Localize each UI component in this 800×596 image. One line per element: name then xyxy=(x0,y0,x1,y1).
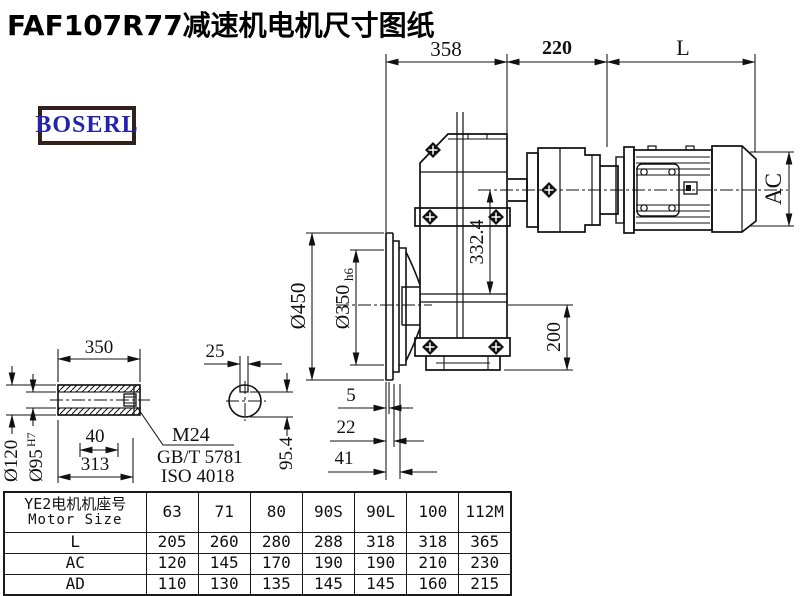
cell: 190 xyxy=(302,553,354,574)
table-row-AD: AD 110 130 135 145 145 160 215 xyxy=(4,574,511,595)
dim-AC-label: AC xyxy=(761,173,786,205)
cell: 205 xyxy=(146,532,198,553)
shaft-313-label: 313 xyxy=(81,454,110,475)
cell: 210 xyxy=(407,553,459,574)
cell: 135 xyxy=(250,574,302,595)
col-header: 63 xyxy=(146,492,198,532)
dim-41-label: 41 xyxy=(335,448,354,469)
cell: 280 xyxy=(250,532,302,553)
output-flange xyxy=(386,233,420,380)
adapter-bolt xyxy=(541,182,557,198)
cell: 190 xyxy=(355,553,407,574)
dim-22-label: 22 xyxy=(337,417,356,438)
table-row-AC: AC 120 145 170 190 190 210 230 xyxy=(4,553,511,574)
technical-drawing: 358 220 L AC 332.4 Ø450 Ø350 h6 200 5 22… xyxy=(0,0,800,490)
centerlines xyxy=(50,190,788,421)
cell: 130 xyxy=(198,574,250,595)
dim-L-label: L xyxy=(676,35,689,60)
cell: 318 xyxy=(407,532,459,553)
standard-gb-label: GB/T 5781 xyxy=(157,447,243,468)
cell: 145 xyxy=(198,553,250,574)
dim-450-label: Ø450 xyxy=(286,283,310,330)
cell: 110 xyxy=(146,574,198,595)
col-header: 80 xyxy=(250,492,302,532)
cell: 365 xyxy=(459,532,511,553)
cell: 318 xyxy=(355,532,407,553)
motor-dimension-table: YE2电机机座号 Motor Size 63 71 80 90S 90L 100… xyxy=(3,491,512,596)
thread-spec-label: M24 xyxy=(172,424,210,446)
col-header: 90S xyxy=(302,492,354,532)
brand-logo-text: BOSERL xyxy=(35,112,138,139)
row-label: L xyxy=(4,532,146,553)
shaft-954-label: 95.4 xyxy=(276,436,297,470)
shaft-25-label: 25 xyxy=(206,341,225,362)
cell: 145 xyxy=(355,574,407,595)
dim-220-label: 220 xyxy=(542,37,572,59)
motor-size-header-en: Motor Size xyxy=(5,513,146,528)
cell: 288 xyxy=(302,532,354,553)
dim-350h6-tol-label: h6 xyxy=(341,268,356,282)
shaft-120-label: Ø120 xyxy=(1,440,22,482)
row-label: AC xyxy=(4,553,146,574)
cell: 215 xyxy=(459,574,511,595)
cell: 120 xyxy=(146,553,198,574)
dim-332-label: 332.4 xyxy=(466,220,488,265)
brand-logo: BOSERL xyxy=(38,106,136,145)
dim-350h6-label: Ø350 xyxy=(332,285,354,329)
dim-200-label: 200 xyxy=(543,322,565,352)
col-header: 90L xyxy=(355,492,407,532)
table-header-row: YE2电机机座号 Motor Size 63 71 80 90S 90L 100… xyxy=(4,492,511,532)
cell: 170 xyxy=(250,553,302,574)
cell: 230 xyxy=(459,553,511,574)
motor-size-header: YE2电机机座号 Motor Size xyxy=(4,492,146,532)
cell: 160 xyxy=(407,574,459,595)
shaft-40-label: 40 xyxy=(86,426,105,447)
motor-size-header-cn: YE2电机机座号 xyxy=(5,497,146,513)
row-label: AD xyxy=(4,574,146,595)
col-header: 100 xyxy=(407,492,459,532)
fan-cowl xyxy=(712,146,756,232)
dim-358-label: 358 xyxy=(430,37,462,61)
table-row-L: L 205 260 280 288 318 318 365 xyxy=(4,532,511,553)
shaft-95-tol-label: H7 xyxy=(24,432,38,447)
cell: 260 xyxy=(198,532,250,553)
standard-iso-label: ISO 4018 xyxy=(161,466,234,487)
col-header: 112M xyxy=(459,492,511,532)
shaft-95-label: Ø95 xyxy=(26,449,47,482)
dim-5-label: 5 xyxy=(346,385,356,406)
page-title: FAF107R77减速机电机尺寸图纸 xyxy=(7,4,435,44)
shaft-350-label: 350 xyxy=(85,337,114,358)
cell: 145 xyxy=(302,574,354,595)
col-header: 71 xyxy=(198,492,250,532)
